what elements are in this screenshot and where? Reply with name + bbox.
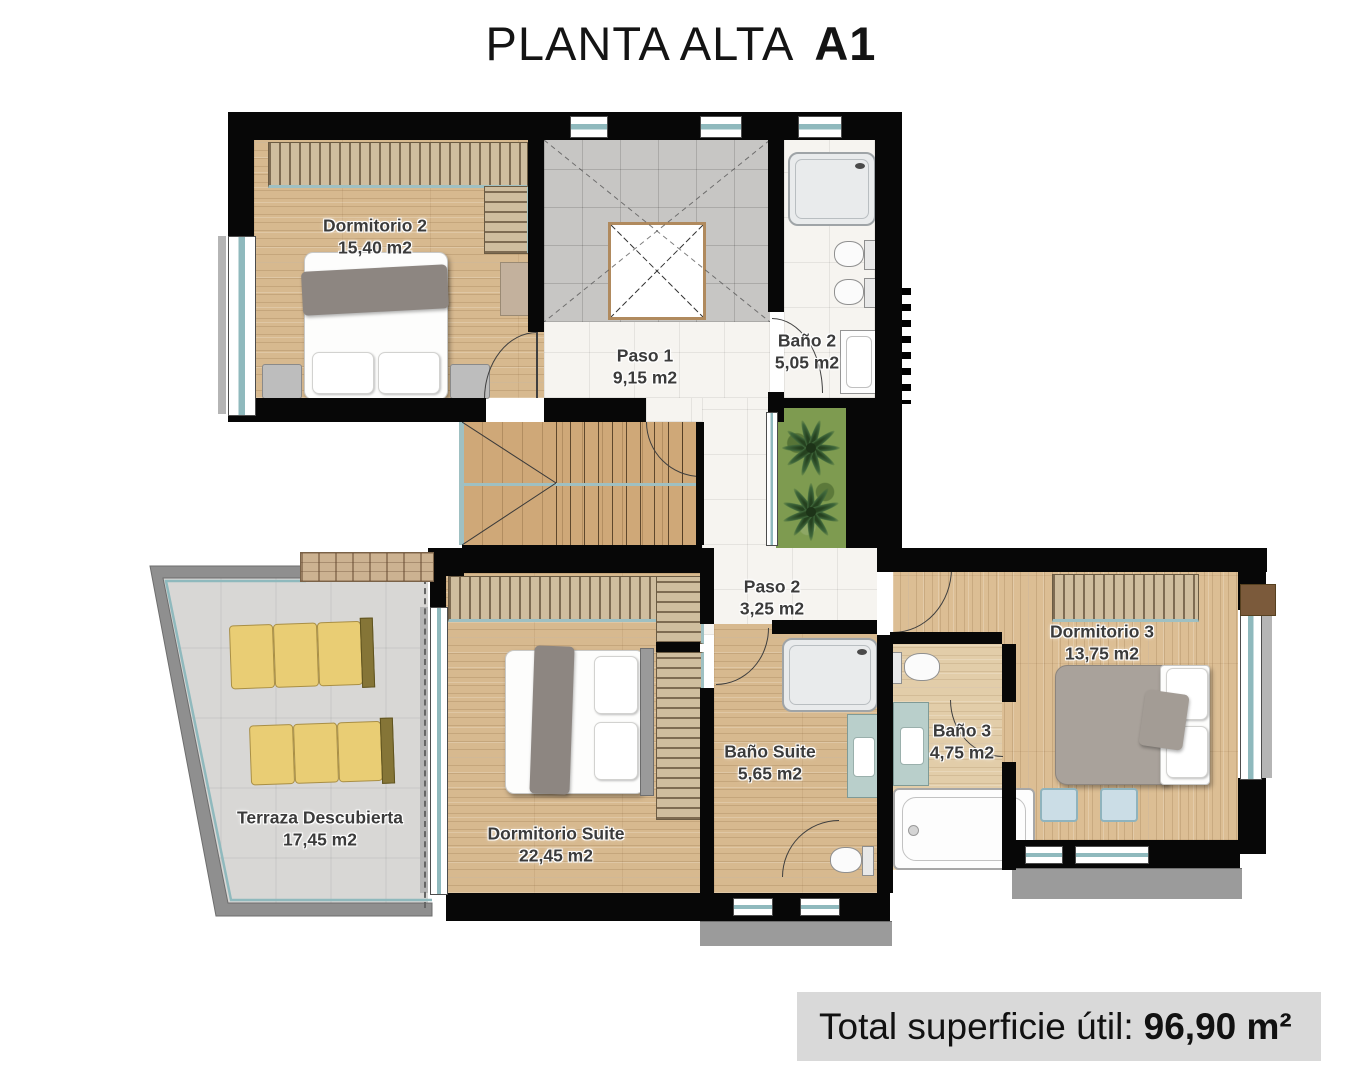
wall [228, 112, 254, 236]
stool-icon [1040, 788, 1078, 822]
room-label-terraza: Terraza Descubierta 17,45 m2 [237, 807, 403, 852]
toilet-icon [834, 240, 876, 268]
wardrobe-icon [268, 142, 528, 188]
room-name: Paso 2 [740, 576, 804, 598]
pillow-icon [594, 722, 638, 780]
window [1240, 610, 1262, 780]
door-leaf [536, 332, 538, 398]
room-label-paso1: Paso 1 9,15 m2 [613, 345, 677, 390]
wall [1002, 644, 1016, 702]
bed-throw [301, 264, 449, 316]
room-label-bano2: Baño 2 5,05 m2 [775, 330, 839, 375]
vanity-icon [893, 702, 929, 786]
wall [696, 422, 704, 545]
exterior-ledge [1012, 868, 1242, 899]
wardrobe-icon [656, 576, 704, 644]
vanity-icon [847, 714, 879, 798]
sink-icon [840, 330, 878, 394]
window [766, 412, 778, 546]
window [1075, 846, 1149, 864]
room-label-dormitorio-suite: Dormitorio Suite 22,45 m2 [487, 823, 624, 868]
room-name: Paso 1 [613, 345, 677, 367]
wall [772, 620, 877, 634]
beam [1240, 584, 1276, 616]
lounger-icon [247, 717, 395, 788]
room-name: Dormitorio 2 [323, 215, 427, 237]
wall [875, 112, 902, 422]
window [733, 898, 773, 916]
wall [890, 632, 1002, 644]
wall [544, 398, 646, 422]
room-area: 17,45 m2 [237, 829, 403, 851]
room-area: 5,05 m2 [775, 352, 839, 374]
exterior-ledge [700, 921, 892, 946]
room-area: 4,75 m2 [930, 742, 994, 764]
window-sill [1262, 610, 1272, 778]
stair-direction-lines [462, 422, 556, 545]
floor-door-gap [646, 398, 702, 422]
wardrobe-icon [448, 576, 660, 622]
total-label: Total superficie útil: [819, 1006, 1134, 1048]
room-name: Baño Suite [724, 741, 815, 763]
palm-plant-icon [781, 482, 841, 542]
wardrobe-icon [656, 652, 704, 820]
lounger-icon [227, 617, 375, 692]
stool-icon [1100, 788, 1138, 822]
floor-plan: PLANTA ALTAA1 [0, 0, 1362, 1080]
page-title: PLANTA ALTAA1 [0, 16, 1362, 71]
room-area: 22,45 m2 [487, 845, 624, 867]
room-area: 3,25 m2 [740, 598, 804, 620]
room-area: 9,15 m2 [613, 367, 677, 389]
wall [1002, 762, 1016, 870]
wall [877, 635, 893, 893]
toilet-icon [890, 652, 940, 682]
room-area: 13,75 m2 [1050, 643, 1154, 665]
wardrobe-icon [1052, 574, 1199, 622]
sliding-door-glass [430, 607, 448, 895]
window [800, 898, 840, 916]
wall [462, 545, 702, 573]
room-name: Dormitorio Suite [487, 823, 624, 845]
stone-wall [300, 552, 434, 582]
wardrobe-icon [484, 186, 530, 254]
pillow-icon [594, 656, 638, 714]
bed-headboard [640, 648, 654, 796]
total-area-bar: Total superficie útil: 96,90 m² [797, 992, 1321, 1061]
wall-niche [500, 262, 530, 316]
shower-icon [782, 638, 878, 712]
room-name: Baño 3 [930, 720, 994, 742]
pillow-icon [378, 352, 440, 394]
terrace-boundary-dashed-line [424, 578, 426, 908]
wall [1238, 778, 1266, 854]
window [700, 116, 742, 138]
wall [877, 548, 1267, 572]
title-main: PLANTA ALTA [486, 17, 795, 70]
room-name: Baño 2 [775, 330, 839, 352]
nightstand-icon [262, 364, 302, 399]
room-label-bano3: Baño 3 4,75 m2 [930, 720, 994, 765]
bed-cushion [1138, 689, 1189, 751]
total-value: 96,90 m² [1144, 1006, 1292, 1048]
wall [846, 404, 902, 548]
wall-hatch-teeth [902, 288, 911, 404]
void-cross-lines [544, 140, 770, 322]
title-code: A1 [814, 17, 876, 70]
window [228, 236, 256, 416]
wall [228, 398, 486, 422]
room-label-dormitorio2: Dormitorio 2 15,40 m2 [323, 215, 427, 260]
wall [700, 688, 714, 893]
wall [656, 642, 700, 652]
room-area: 15,40 m2 [323, 237, 427, 259]
room-name: Terraza Descubierta [237, 807, 403, 829]
room-label-paso2: Paso 2 3,25 m2 [740, 576, 804, 621]
bed-throw [529, 645, 574, 794]
palm-plant-icon [781, 418, 841, 478]
shower-icon [788, 152, 876, 226]
window-sill [218, 236, 226, 414]
room-area: 5,65 m2 [724, 763, 815, 785]
window [798, 116, 842, 138]
bidet-icon [834, 278, 876, 306]
wall [700, 548, 714, 624]
wall [528, 140, 544, 332]
room-label-dormitorio3: Dormitorio 3 13,75 m2 [1050, 621, 1154, 666]
wall [768, 140, 784, 312]
window [1025, 846, 1063, 864]
pillow-icon [312, 352, 374, 394]
window [570, 116, 608, 138]
room-name: Dormitorio 3 [1050, 621, 1154, 643]
room-label-bano-suite: Baño Suite 5,65 m2 [724, 741, 815, 786]
